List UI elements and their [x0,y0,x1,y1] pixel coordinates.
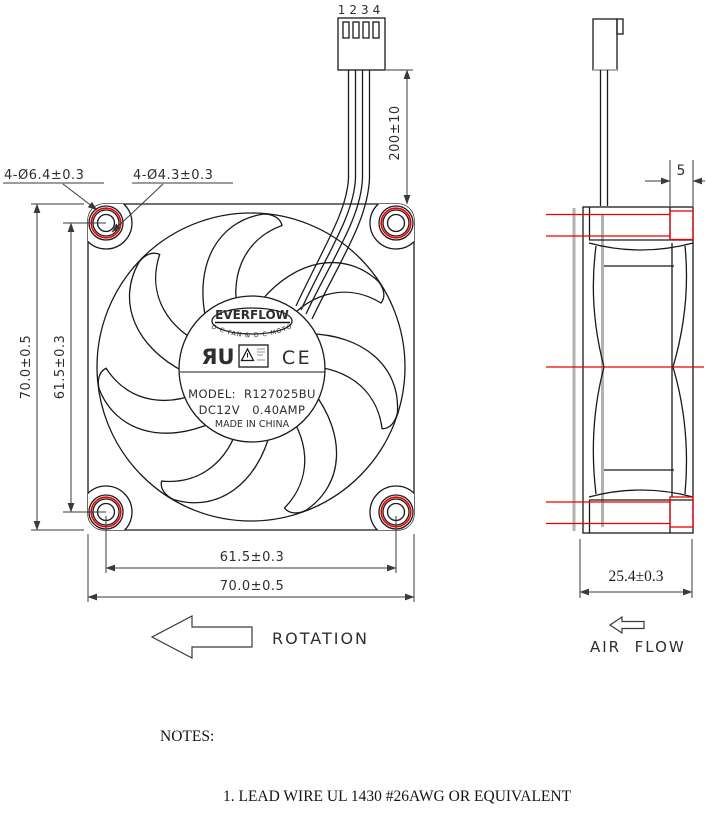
front-view: EVERFLOW D C FAN & D C MOTOR ЯU CE MODEL… [0,0,422,538]
ul-recognized-mark-icon: ЯU [201,345,234,369]
brand-text: EVERFLOW [215,308,289,322]
dim-frame-height: 70.0±0.5 [19,335,34,400]
model-text: MODEL: R127025BU [188,387,316,401]
dim-hole: 4-Ø4.3±0.3 [133,168,213,183]
dim-lead-length: 200±10 [388,105,403,160]
side-view: 5 25.4±0.3 AIR FLOW [546,19,705,656]
ce-mark-icon: CE [282,347,312,369]
notes-section: NOTES: 1. LEAD WIRE UL 1430 #26AWG OR EQ… [160,687,571,829]
pin-numbers: 1234 [338,3,385,17]
dim-frame-width: 70.0±0.5 [220,579,285,594]
venturi-lip [589,490,693,497]
airflow-arrow-icon [610,617,644,633]
dim-hole-boss: 4-Ø6.4±0.3 [4,168,84,183]
connector-side [593,19,617,70]
connector-latch [617,19,623,34]
fan-spec-drawing: EVERFLOW D C FAN & D C MOTOR ЯU CE MODEL… [0,0,706,829]
hole-section-marks [546,211,704,527]
blade-silhouette [673,246,687,494]
notes-title: NOTES: [160,727,571,747]
dim-hole-pitch-v: 61.5±0.3 [53,335,68,400]
connector-housing [338,18,385,70]
origin-text: MADE IN CHINA [215,419,290,430]
rotation-arrow-icon [152,616,252,658]
airflow-annotation: AIR FLOW [590,617,686,656]
drawing-canvas: EVERFLOW D C FAN & D C MOTOR ЯU CE MODEL… [0,0,706,680]
rotation-label: ROTATION [272,629,369,648]
rating-text: DC12V 0.40AMP [199,403,306,417]
dim-hole-pitch-h: 61.5±0.3 [220,550,285,565]
rotation-annotation: ROTATION [152,616,369,658]
connector-front: 1234 [338,3,385,70]
dim-flange: 5 [677,163,686,179]
note-item: 1. LEAD WIRE UL 1430 #26AWG OR EQUIVALEN… [223,787,571,807]
airflow-label: AIR FLOW [590,638,686,656]
side-body [583,207,693,533]
dim-frame-depth: 25.4±0.3 [608,568,663,585]
venturi-lip [589,243,693,250]
